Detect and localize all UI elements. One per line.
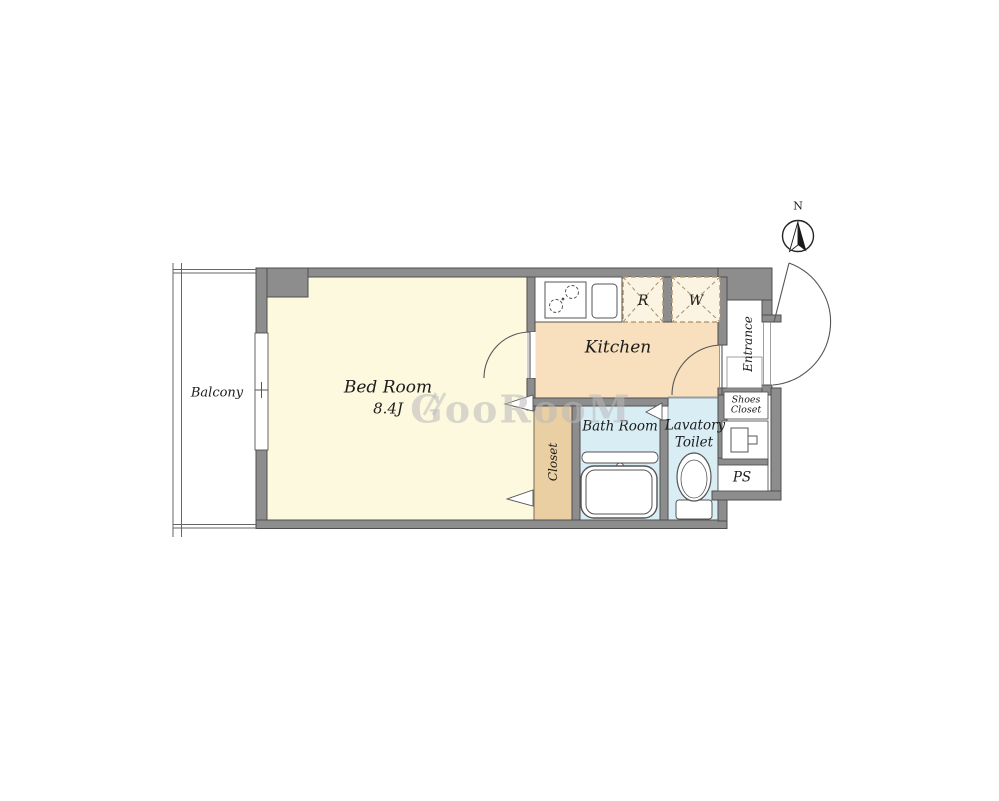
balcony-window (255, 333, 268, 450)
lavatory-label-line2: Toilet (675, 436, 713, 450)
washer-label: W (689, 294, 703, 308)
bedroom-size-label: 8.4J (373, 402, 403, 417)
stove-icon (545, 282, 586, 318)
water-heater-box (722, 421, 768, 459)
entrance-door-arc (764, 263, 831, 385)
closet-label: Closet (547, 443, 559, 481)
compass-north-label: N (793, 201, 803, 212)
floor-plan-image: Balcony Bed Room 8.4J Kitchen Closet Bat… (0, 0, 999, 801)
refrigerator-label: R (638, 294, 649, 308)
kitchen-label: Kitchen (585, 340, 651, 357)
balcony-label: Balcony (191, 387, 243, 400)
bathtub-icon (581, 466, 657, 518)
shoes-closet-label-line2: Closet (731, 405, 761, 415)
sink-icon (592, 284, 617, 318)
pipe-space-label: PS (733, 471, 751, 485)
lavatory-label-line1: Lavatory (665, 419, 725, 433)
compass-icon (783, 221, 814, 252)
toilet-icon (676, 453, 712, 519)
kitchen-counter (535, 277, 622, 322)
entrance-label: Entrance (742, 316, 754, 372)
watermark-text: GooRooM (410, 387, 631, 432)
